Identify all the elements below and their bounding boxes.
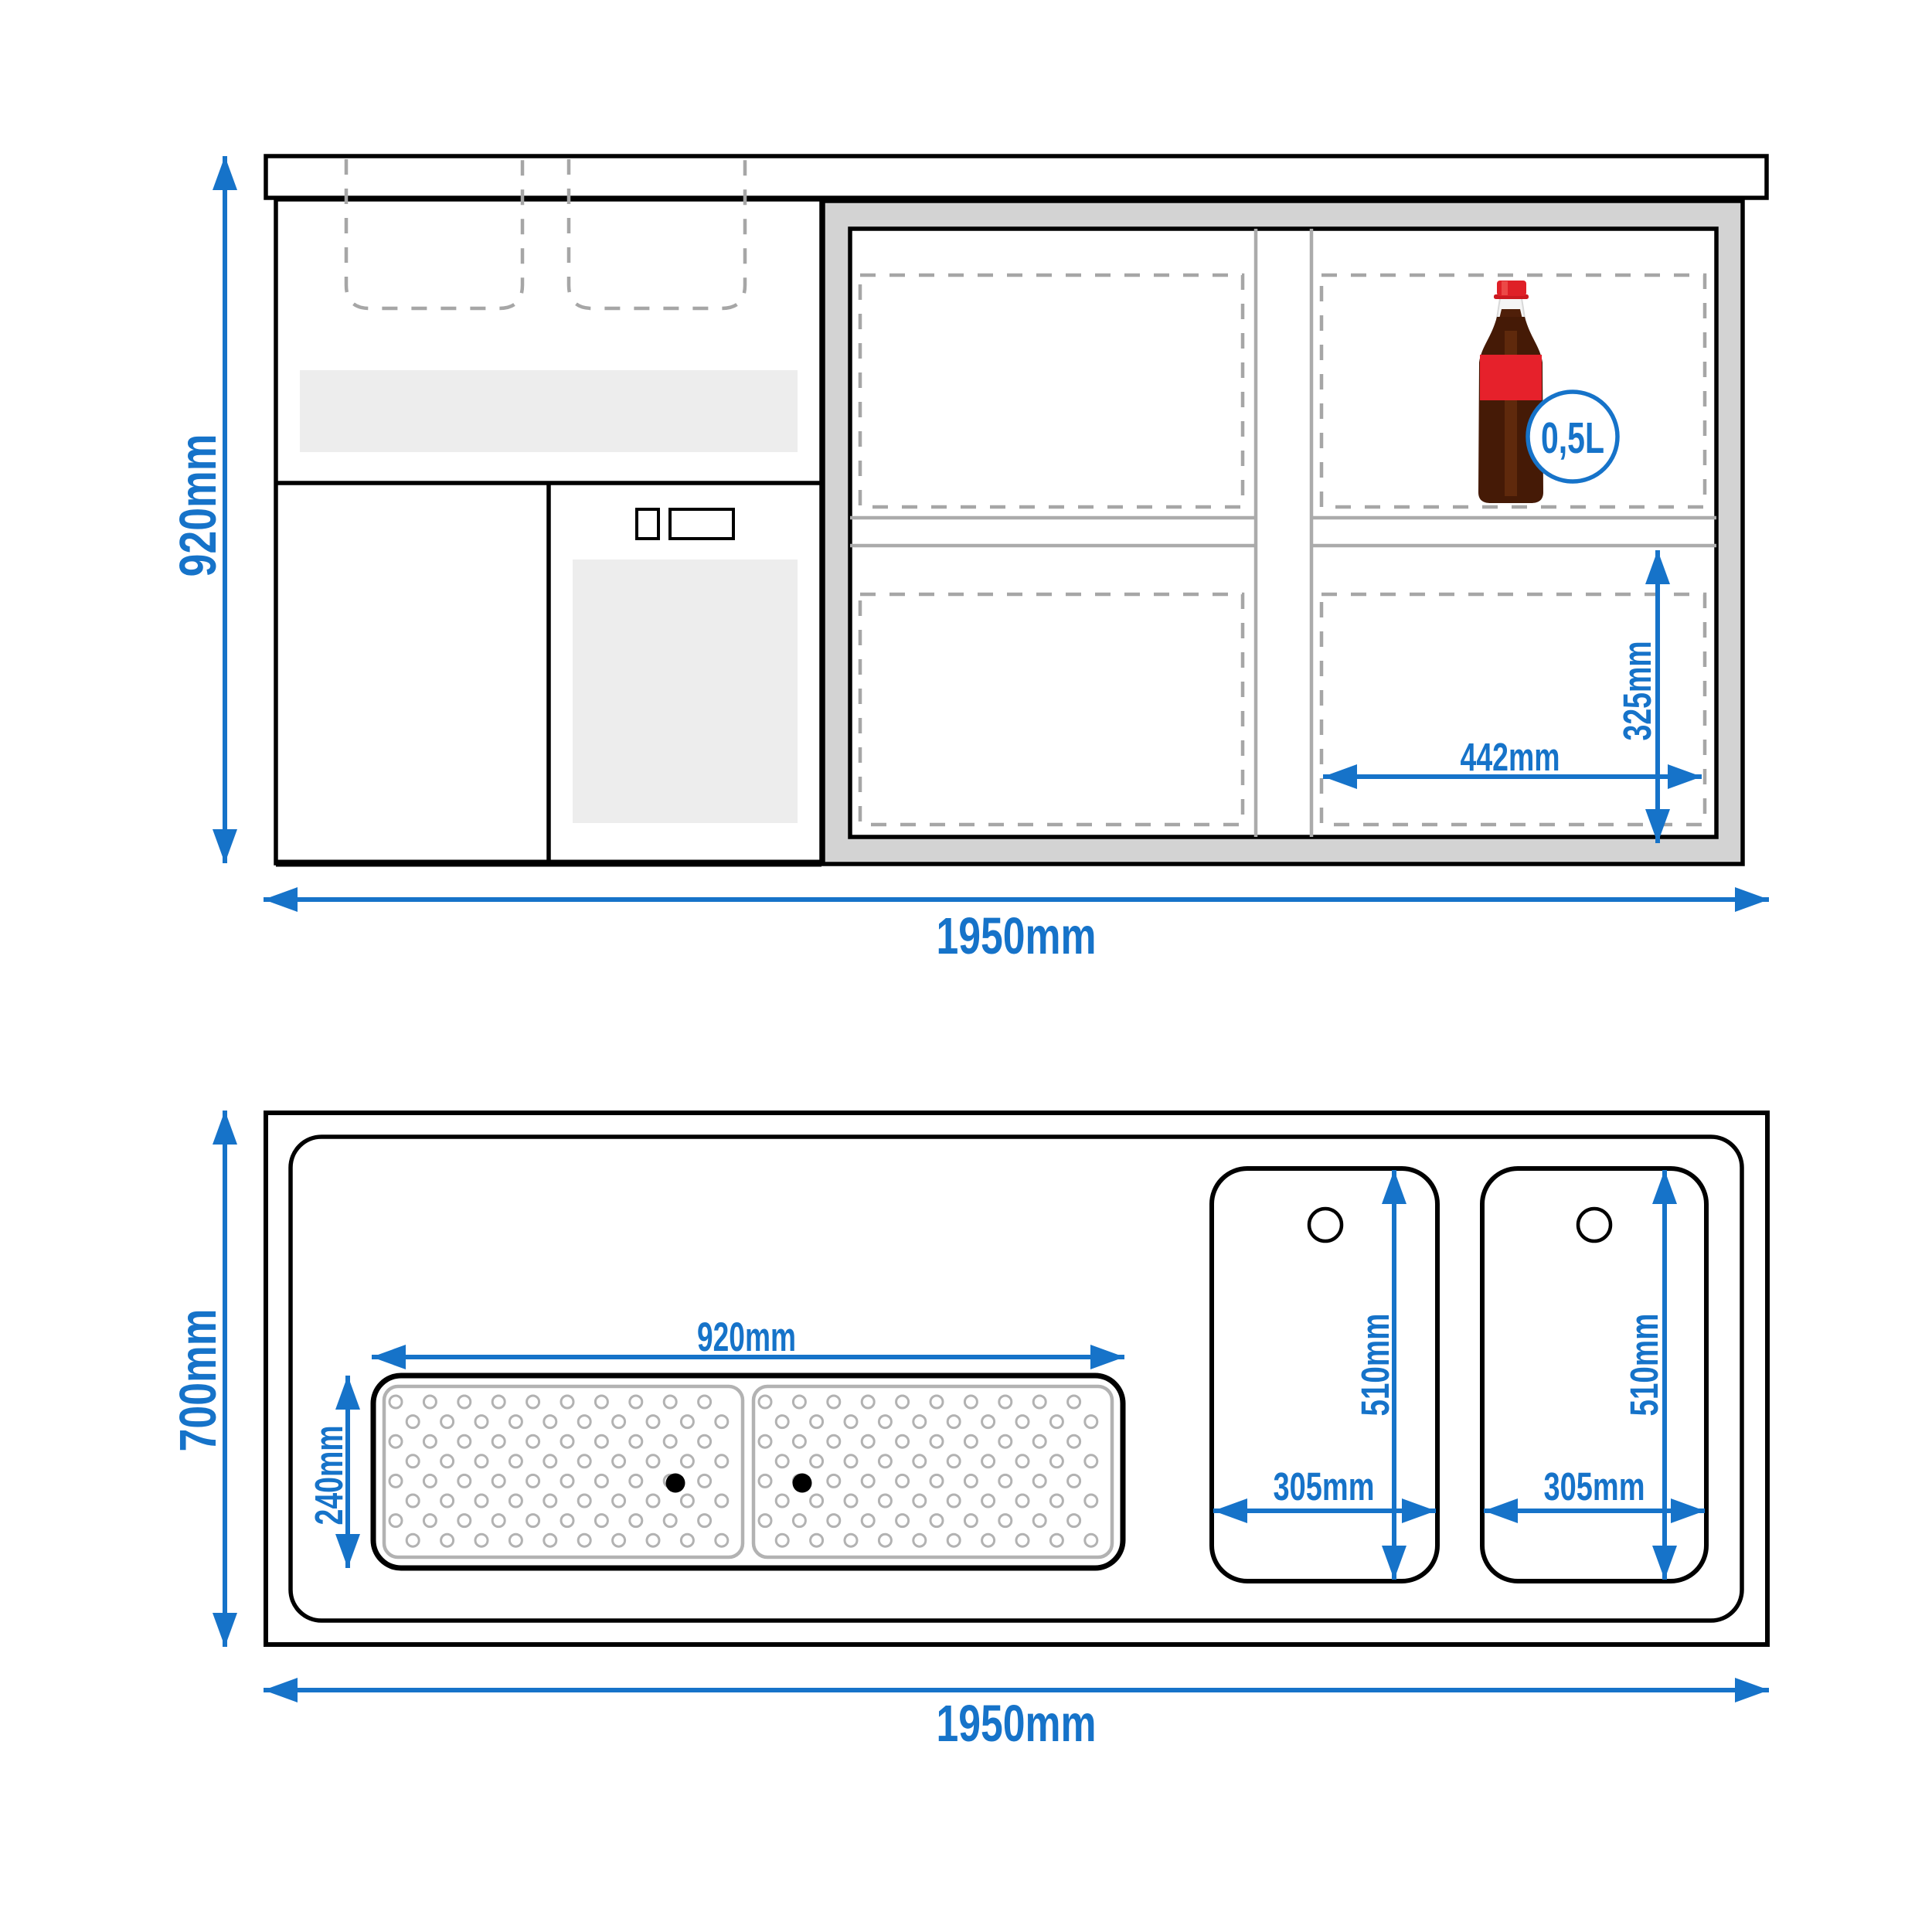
svg-text:305mm: 305mm bbox=[1544, 1464, 1645, 1509]
svg-text:305mm: 305mm bbox=[1274, 1464, 1375, 1509]
svg-text:920mm: 920mm bbox=[697, 1315, 796, 1360]
svg-text:510mm: 510mm bbox=[1622, 1314, 1666, 1417]
svg-text:442mm: 442mm bbox=[1461, 735, 1560, 779]
svg-text:1950mm: 1950mm bbox=[937, 1695, 1097, 1753]
svg-text:0,5L: 0,5L bbox=[1541, 413, 1604, 463]
svg-text:325mm: 325mm bbox=[1615, 641, 1659, 741]
svg-text:920mm: 920mm bbox=[169, 434, 227, 577]
svg-text:510mm: 510mm bbox=[1353, 1314, 1397, 1417]
svg-text:240mm: 240mm bbox=[307, 1426, 351, 1526]
svg-text:1950mm: 1950mm bbox=[937, 907, 1097, 965]
svg-text:700mm: 700mm bbox=[169, 1309, 227, 1452]
